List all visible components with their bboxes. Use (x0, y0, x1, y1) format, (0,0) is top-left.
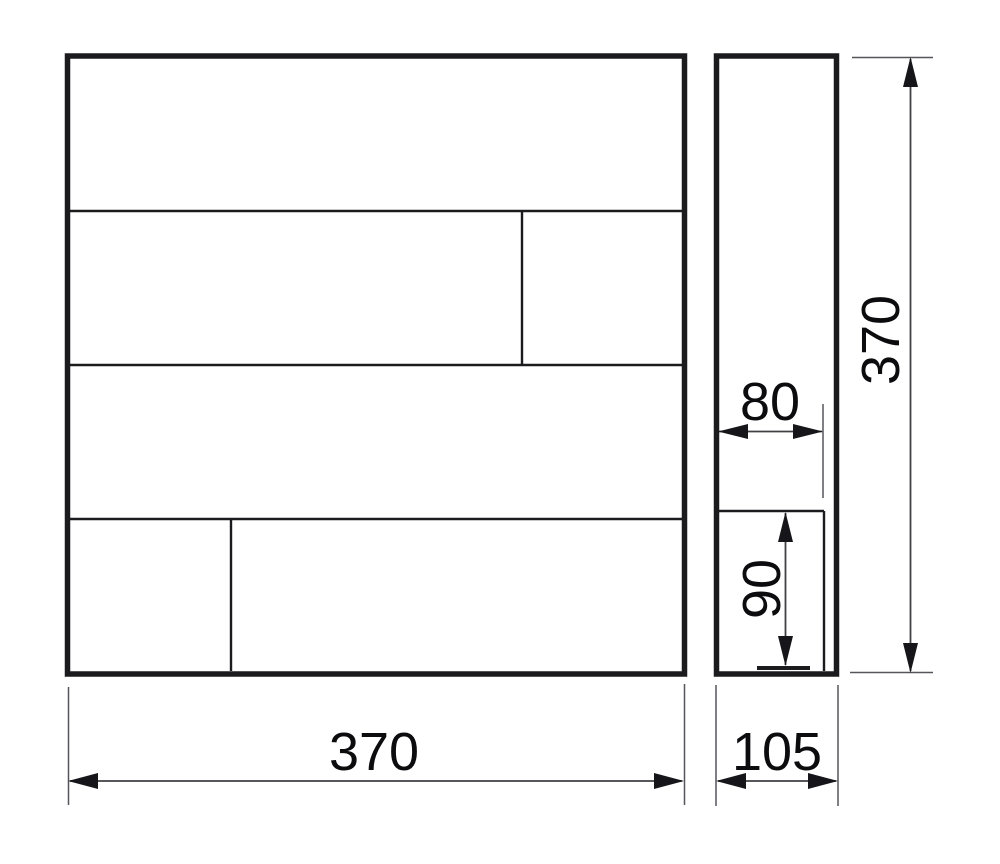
dimension-overall-height: 370 (850, 57, 933, 673)
arrowhead-right-icon (654, 773, 684, 789)
dimension-label-side-depth: 105 (732, 722, 822, 782)
dimension-label-slot-width: 80 (740, 372, 800, 432)
dimension-label-slot-depth: 90 (732, 559, 792, 619)
dimension-front-width: 370 (68, 684, 685, 805)
front-view (68, 56, 685, 674)
technical-drawing: 370 105 370 80 (0, 0, 1000, 864)
dimension-label-overall-height: 370 (851, 295, 911, 385)
arrowhead-down-icon (903, 643, 918, 673)
arrowhead-up-icon (903, 57, 918, 87)
arrowhead-left-icon (68, 773, 98, 789)
drawing-svg: 370 105 370 80 (0, 0, 1000, 864)
dimension-label-front-width: 370 (329, 722, 419, 782)
dimension-side-depth: 105 (716, 685, 838, 806)
